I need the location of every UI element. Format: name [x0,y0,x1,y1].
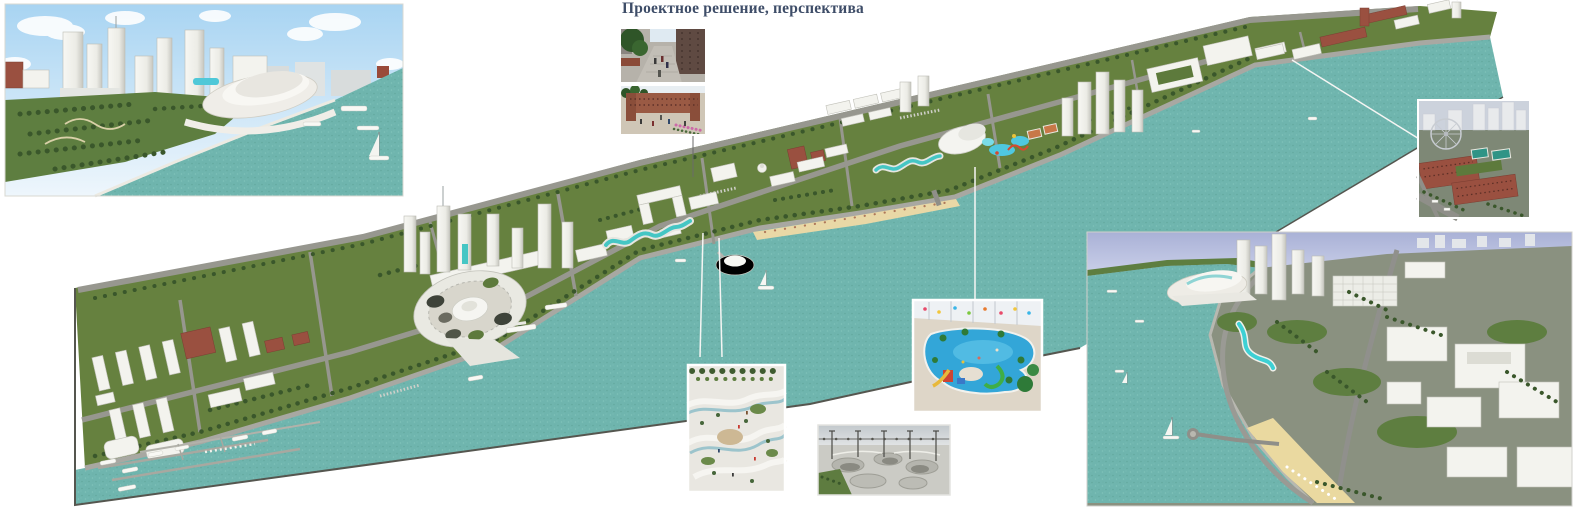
inset-brick-quarter-aerial [1418,100,1530,218]
board-graphics [0,0,1576,511]
inset-street-view [620,28,706,83]
hero-render-top-left [0,4,404,196]
hero-render-bottom-right [1087,232,1572,506]
sand-island [717,429,743,445]
presentation-board: Проектное решение, перспектива [0,0,1576,511]
inset-skatepark [818,425,950,495]
ferris-wheel [1431,119,1461,149]
inset-aquapark [913,300,1042,412]
inset-brick-courtyard [620,85,706,135]
inset-landscape-playground [688,365,785,492]
page-title: Проектное решение, перспектива [622,0,942,18]
